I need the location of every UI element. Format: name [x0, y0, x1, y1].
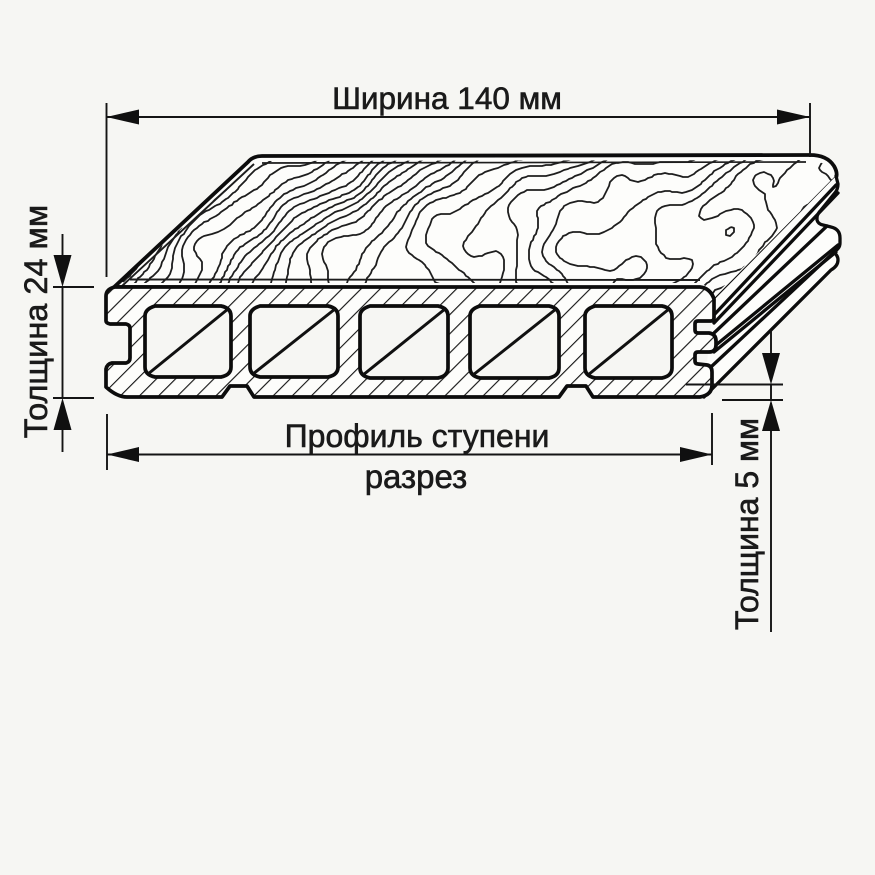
svg-text:Толщина 5 мм: Толщина 5 мм [729, 418, 765, 630]
svg-text:Толщина 24 мм: Толщина 24 мм [18, 205, 54, 438]
svg-text:Ширина 140 мм: Ширина 140 мм [332, 80, 562, 116]
svg-text:разрез: разрез [365, 458, 468, 495]
svg-text:Профиль ступени: Профиль ступени [285, 418, 550, 454]
